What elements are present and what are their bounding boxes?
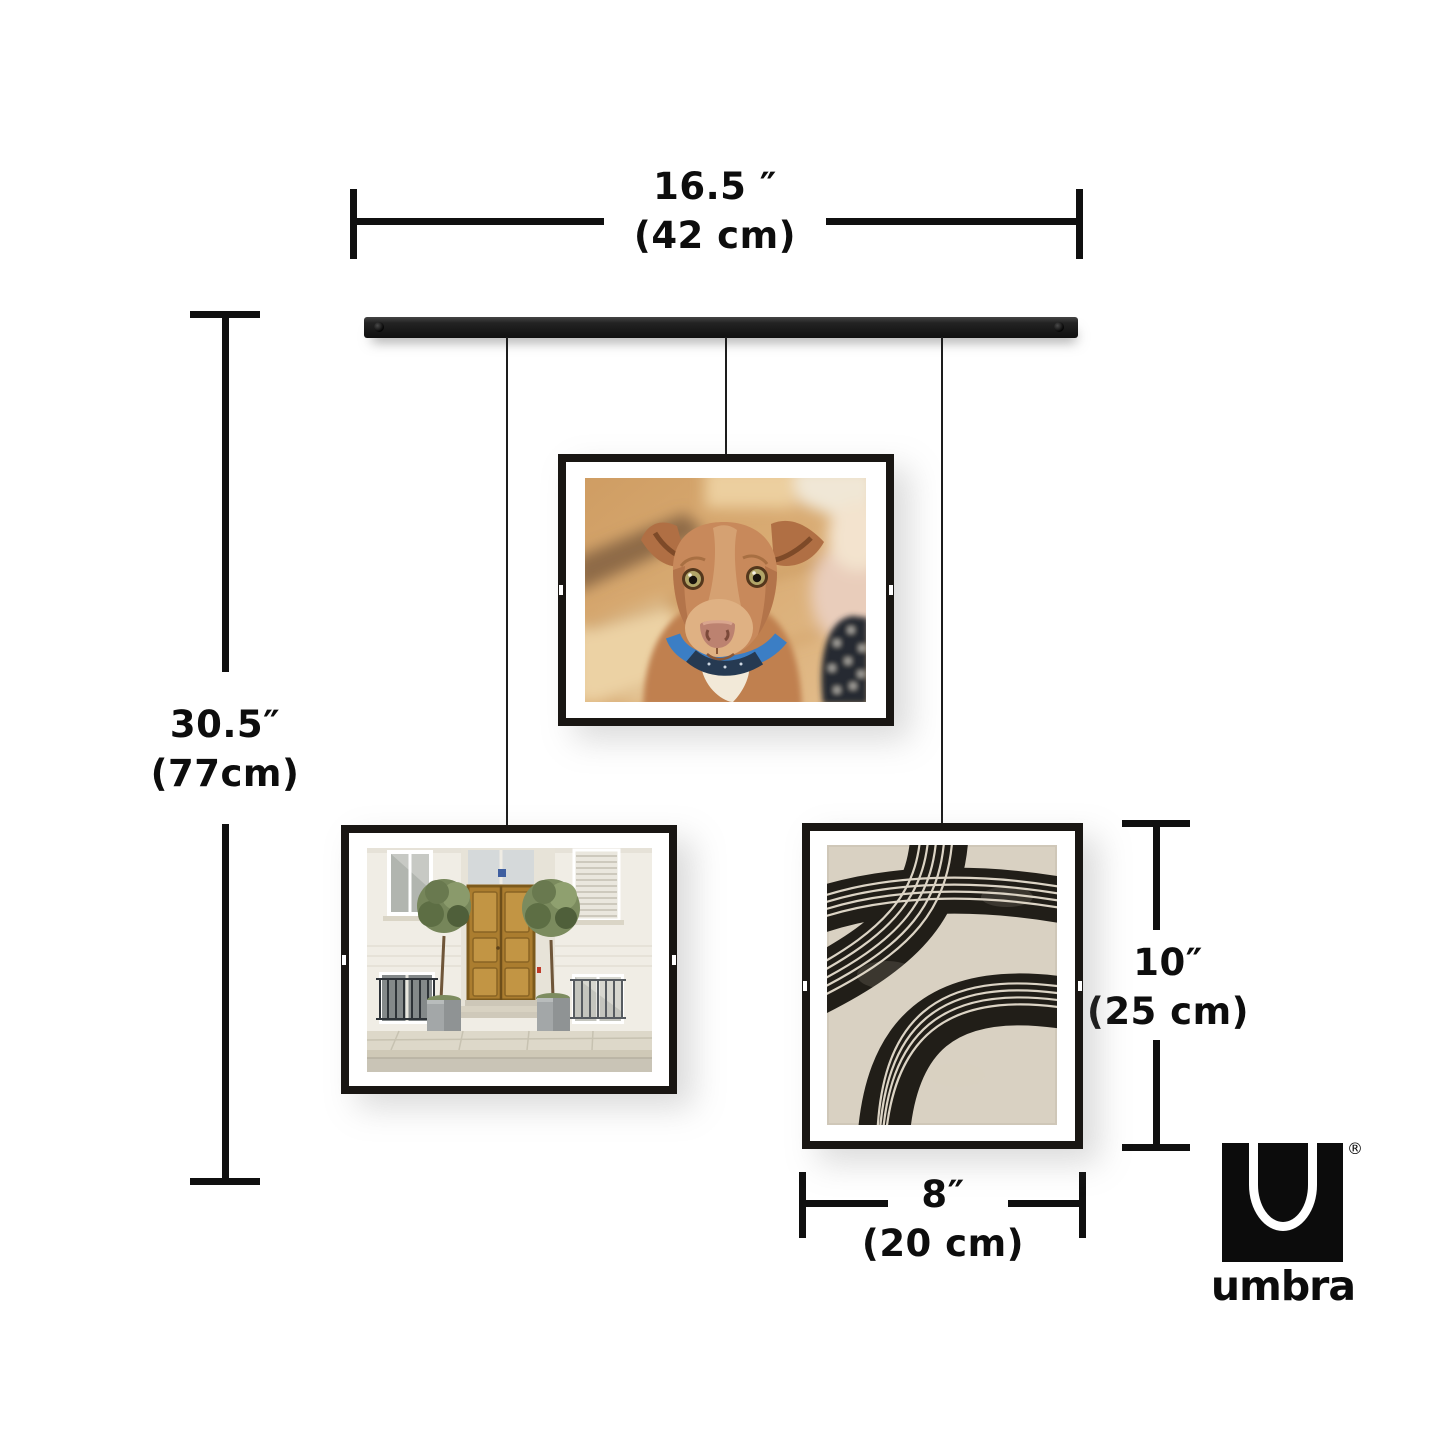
frame-height-label: 10″ (25 cm) xyxy=(1048,938,1288,1036)
dimension-tick-top xyxy=(1122,820,1190,827)
rail-screw-right xyxy=(1054,322,1064,332)
dimension-tick-bottom xyxy=(190,1178,260,1185)
frame-width-cm: (20 cm) xyxy=(793,1219,1093,1268)
abstract-art xyxy=(827,845,1057,1125)
frame-clip-left xyxy=(803,981,807,991)
rail-width-label: 16.5 ″ (42 cm) xyxy=(565,162,865,260)
sidewalk xyxy=(367,1031,652,1072)
frame-right-abstract xyxy=(802,823,1083,1149)
hanging-wire-center xyxy=(725,337,727,454)
frame-clip-right xyxy=(889,585,893,595)
product-dimension-diagram: 16.5 ″ (42 cm) 30.5″ (77cm) 10″ (25 cm) … xyxy=(0,0,1445,1445)
frame-height-inches: 10″ xyxy=(1048,938,1288,987)
dimension-tick-left xyxy=(350,189,357,259)
frame-width-inches: 8″ xyxy=(793,1170,1093,1219)
hanging-rail xyxy=(364,317,1078,338)
umbra-u-logo-icon xyxy=(1222,1143,1343,1262)
dimension-tick-top xyxy=(190,311,260,318)
door-photo xyxy=(367,848,652,1072)
alarm-box xyxy=(537,967,541,973)
total-drop-inches: 30.5″ xyxy=(95,700,355,749)
frame-left-door xyxy=(341,825,677,1094)
frame-clip-right xyxy=(1078,981,1082,991)
dimension-tick-bottom xyxy=(1122,1144,1190,1151)
frame-center-dog xyxy=(558,454,894,726)
frame-clip-left xyxy=(342,955,346,965)
rail-width-cm: (42 cm) xyxy=(565,211,865,260)
rail-screw-left xyxy=(374,322,384,332)
dog-photo xyxy=(585,478,866,702)
frame-clip-left xyxy=(559,585,563,595)
total-drop-label: 30.5″ (77cm) xyxy=(95,700,355,798)
frame-height-cm: (25 cm) xyxy=(1048,987,1288,1036)
dimension-line-lower-segment xyxy=(1153,1040,1160,1144)
dimension-tick-right xyxy=(1076,189,1083,259)
dimension-line-upper-segment xyxy=(1153,827,1160,930)
dimension-line-lower-segment xyxy=(222,824,229,1178)
dimension-line-upper-segment xyxy=(222,318,229,672)
umbra-wordmark: umbra xyxy=(1205,1261,1361,1311)
u-glyph xyxy=(1249,1143,1317,1231)
rail-width-inches: 16.5 ″ xyxy=(565,162,865,211)
frame-width-label: 8″ (20 cm) xyxy=(793,1170,1093,1268)
hanging-wire-right xyxy=(941,337,943,823)
total-drop-cm: (77cm) xyxy=(95,749,355,798)
hanging-wire-left xyxy=(506,337,508,825)
registered-trademark-symbol: ® xyxy=(1347,1139,1363,1158)
frame-clip-right xyxy=(672,955,676,965)
lower-right-window xyxy=(570,974,626,1024)
